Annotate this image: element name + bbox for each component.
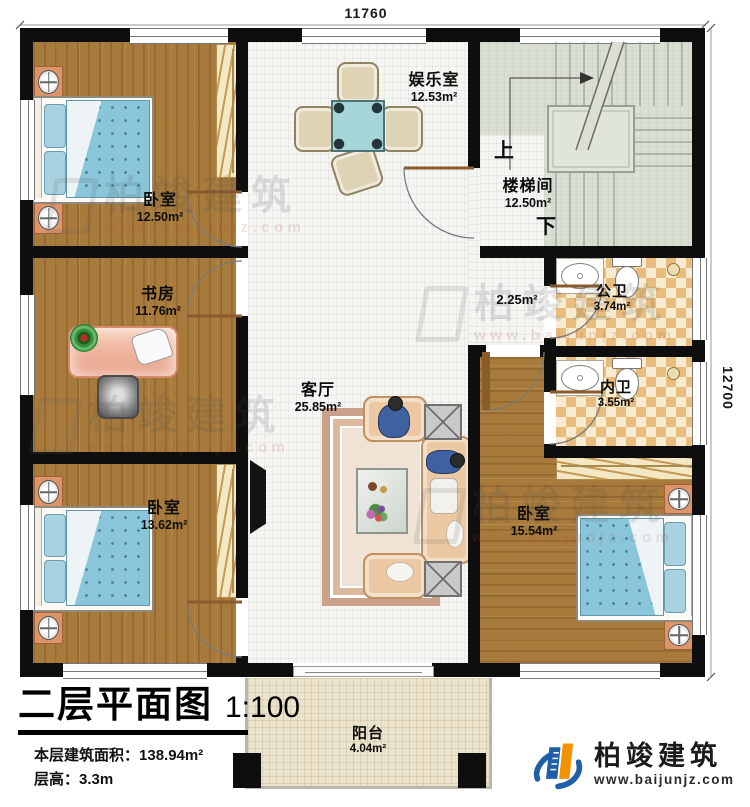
fruit-icon: [368, 482, 377, 491]
sofa-cushion-icon: [446, 520, 464, 548]
room-area: 25.85m²: [276, 400, 360, 415]
brand-site: www.baijunjz.com: [594, 772, 735, 787]
chair-icon: [381, 106, 423, 152]
room-area: 12.53m²: [392, 90, 476, 105]
brand-logo: 柏竣建筑 www.baijunjz.com: [530, 736, 735, 792]
balcony-pillar: [233, 753, 261, 788]
pillow-icon: [44, 560, 66, 603]
window-icon: [520, 28, 660, 44]
room-area: 3.74m²: [570, 301, 654, 315]
wall: [468, 345, 480, 663]
room-name: 公卫: [570, 284, 654, 301]
pillow-icon: [44, 514, 66, 557]
room-label-study: 书房 11.76m²: [108, 286, 208, 319]
dimension-height: 12700: [720, 357, 736, 419]
room-name: 娱乐室: [392, 72, 476, 90]
room-name: 卧室: [488, 506, 580, 524]
floor-height-value: 3.3m: [79, 771, 113, 788]
title-underline: [18, 730, 248, 735]
hallway-area-label: 2.25m²: [486, 292, 548, 307]
wall: [556, 346, 692, 357]
chair-icon: [294, 106, 336, 152]
floor-area-stat: 本层建筑面积：138.94m²: [34, 744, 203, 765]
floor-drain-icon: [667, 367, 680, 380]
room-area: 12.50m²: [112, 210, 208, 225]
person-legs-icon: [430, 478, 458, 514]
wall: [660, 663, 705, 677]
lamp-icon: [668, 488, 690, 510]
plan-title: 二层平面图: [18, 686, 213, 723]
balcony-sliding-door-icon: [293, 666, 434, 677]
wall: [544, 258, 556, 286]
room-label-bedroom-bottom-right: 卧室 15.54m²: [488, 506, 580, 539]
window-icon: [20, 295, 35, 395]
room-label-balcony: 阳台 4.04m²: [326, 726, 410, 756]
brand-logo-icon: [530, 736, 586, 792]
room-area: 15.54m²: [488, 524, 580, 539]
lamp-icon: [38, 70, 59, 94]
room-area: 11.76m²: [108, 304, 208, 319]
wall: [544, 446, 705, 458]
room-label-stairwell: 楼梯间 12.50m²: [476, 178, 580, 211]
wall: [540, 345, 556, 357]
room-name: 内卫: [574, 380, 658, 397]
chair-icon: [337, 62, 379, 104]
room-name: 阳台: [326, 726, 410, 743]
computer-chair-icon: [97, 375, 139, 419]
headboard-icon: [34, 508, 42, 606]
sofa-cushion-icon: [386, 562, 414, 582]
window-icon: [63, 663, 207, 679]
lamp-icon: [38, 206, 59, 230]
pillow-icon: [44, 104, 66, 148]
plant-icon: [70, 324, 98, 352]
window-icon: [692, 515, 707, 635]
fruit-icon: [380, 486, 387, 493]
room-area: 13.62m²: [116, 518, 212, 533]
room-label-bath-private: 内卫 3.55m²: [574, 380, 658, 410]
stairs-down-label: 下: [536, 210, 556, 239]
floor-drain-icon: [667, 263, 680, 276]
window-icon: [20, 100, 35, 200]
room-area: 3.55m²: [574, 397, 658, 411]
room-name: 客厅: [276, 382, 360, 400]
floor-height-stat: 层高：3.3m: [34, 768, 113, 789]
floor-area-value: 138.94m²: [139, 747, 203, 764]
room-name: 楼梯间: [476, 178, 580, 196]
headboard-icon: [34, 98, 42, 198]
pillow-icon: [664, 522, 686, 566]
room-label-living: 客厅 25.85m²: [276, 382, 360, 415]
room-label-entertainment: 娱乐室 12.53m²: [392, 72, 476, 105]
lamp-table-icon: [424, 404, 462, 440]
lamp-icon: [38, 616, 59, 640]
mattress-icon: [66, 100, 150, 198]
wall: [432, 663, 520, 677]
window-icon: [302, 28, 426, 44]
pillow-icon: [664, 569, 686, 613]
nightstand-icon: [664, 484, 694, 514]
double-bed-icon: [576, 514, 700, 622]
lamp-icon: [668, 624, 690, 646]
room-area: 12.50m²: [476, 196, 580, 211]
wall: [20, 246, 248, 258]
person-head-icon: [388, 396, 403, 411]
double-bed-icon: [32, 96, 154, 204]
wall: [207, 663, 293, 677]
floor-height-label: 层高：: [34, 771, 79, 788]
lamp-icon: [38, 480, 59, 504]
window-icon: [692, 362, 707, 445]
nightstand-icon: [34, 612, 63, 644]
balcony-pillar: [458, 753, 486, 788]
wall: [480, 246, 705, 258]
nightstand-icon: [34, 476, 63, 508]
floor-area-label: 本层建筑面积：: [34, 747, 139, 764]
wall: [20, 663, 63, 677]
room-name: 卧室: [112, 192, 208, 210]
nightstand-icon: [34, 202, 63, 234]
nightstand-icon: [664, 620, 694, 650]
plan-scale: 1:100: [225, 692, 300, 724]
floor-bedroom-bottom-right-strip: [480, 357, 544, 458]
dimension-width: 11760: [330, 5, 402, 21]
room-label-bath-public: 公卫 3.74m²: [570, 284, 654, 314]
wall: [236, 316, 248, 598]
person-head-icon: [450, 453, 465, 468]
room-name: 书房: [108, 286, 208, 304]
wall: [236, 40, 248, 192]
wall: [20, 452, 248, 464]
game-table-icon: [331, 100, 385, 152]
room-label-bedroom-bottom-left: 卧室 13.62m²: [116, 500, 212, 533]
room-label-bedroom-top-left: 卧室 12.50m²: [112, 192, 208, 225]
plan-title-row: 二层平面图 1:100: [18, 686, 300, 723]
wall: [236, 656, 248, 665]
brand-name: 柏竣建筑: [594, 741, 735, 772]
tv-icon: [250, 460, 266, 534]
room-area: 4.04m²: [326, 743, 410, 757]
stairs-up-label: 上: [494, 134, 514, 163]
lamp-table-icon: [424, 561, 462, 597]
window-icon: [130, 28, 228, 44]
window-icon: [692, 258, 707, 340]
room-name: 卧室: [116, 500, 212, 518]
floor-plan-canvas: 卧室 12.50m² 书房 11.76m² 卧室 13.62m² 娱乐室 12.…: [0, 0, 750, 807]
flower-vase-icon: [362, 500, 392, 526]
pillow-icon: [44, 151, 66, 195]
window-icon: [20, 505, 35, 610]
mattress-icon: [580, 518, 664, 616]
window-icon: [520, 663, 660, 679]
nightstand-icon: [34, 66, 63, 98]
